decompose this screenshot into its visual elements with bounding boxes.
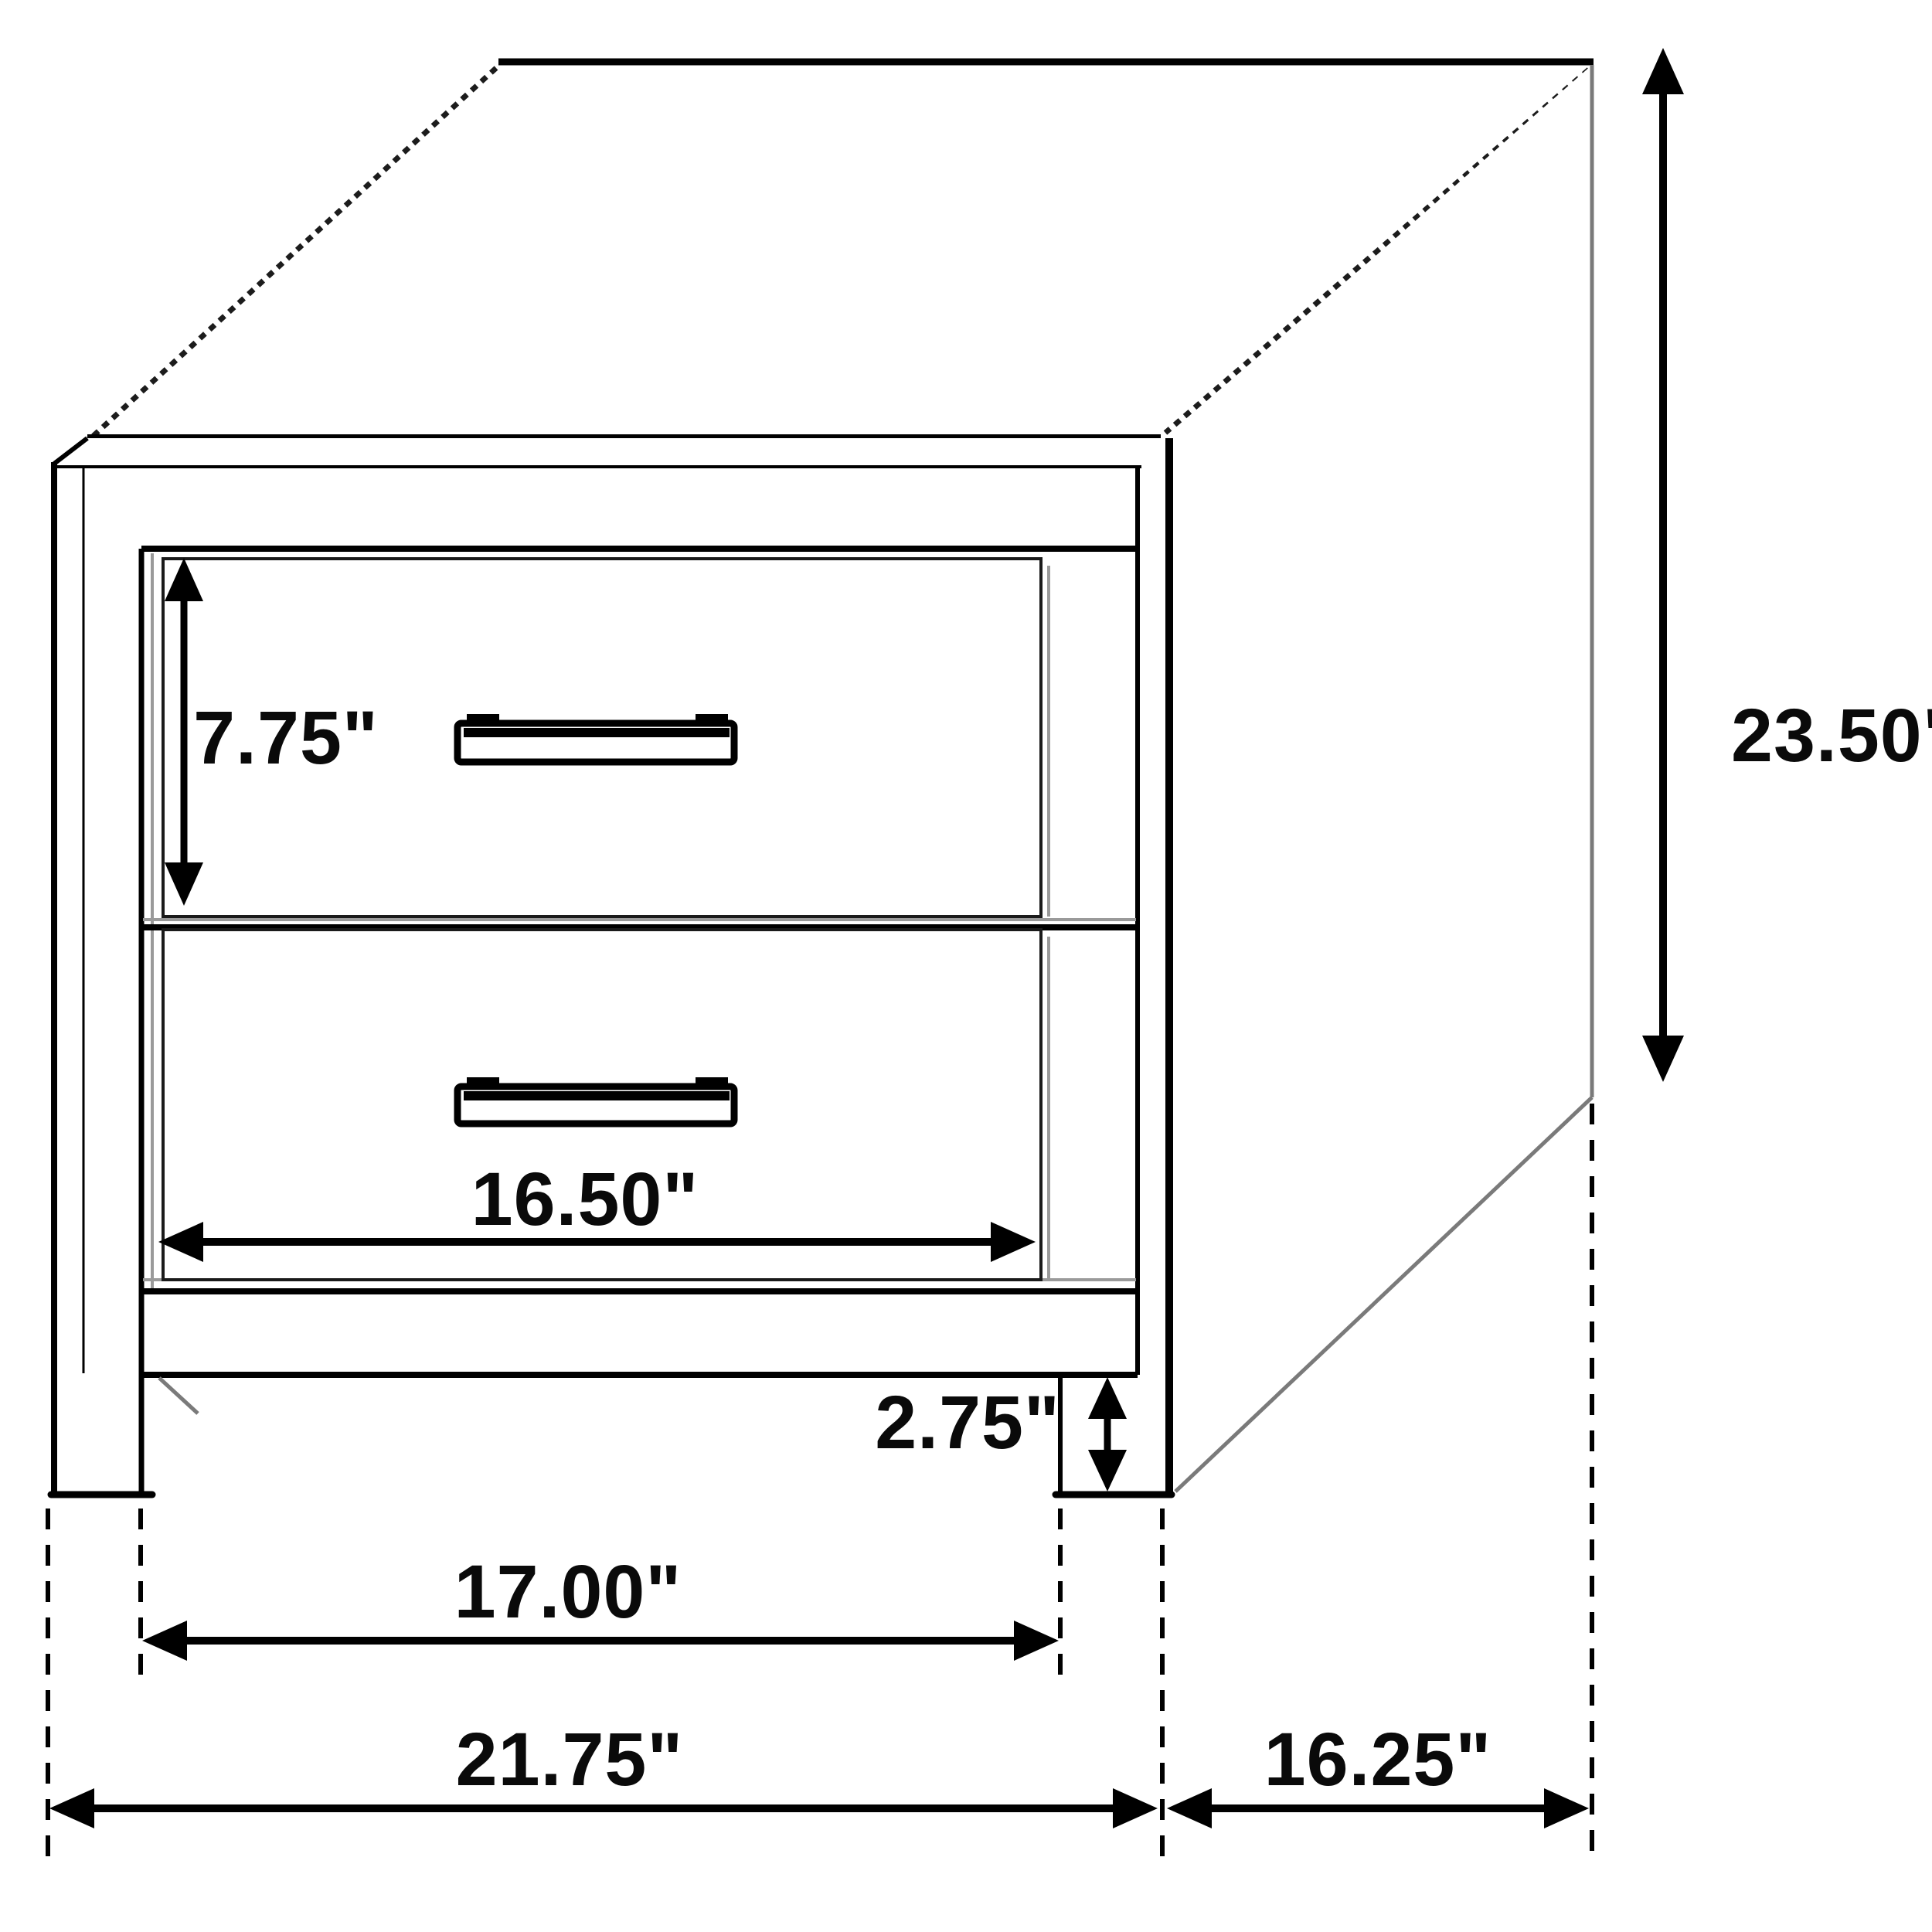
- dim-label-overall-height: 23.50": [1731, 693, 1932, 777]
- dim-label-overall-width: 21.75": [456, 1717, 684, 1801]
- dim-label-depth: 16.25": [1264, 1717, 1492, 1801]
- dimension-overall-height: 23.50": [1642, 48, 1932, 1082]
- arrow-right-icon: [1113, 1788, 1158, 1828]
- dimension-inner-leg-span: 17.00": [142, 1549, 1059, 1661]
- top-drawer-handle: [457, 714, 734, 762]
- bottom-drawer-handle: [457, 1077, 734, 1124]
- dimension-overall-width: 21.75": [49, 1717, 1158, 1828]
- dim-label-leg-height: 2.75": [875, 1380, 1060, 1464]
- dim-label-inner-leg-span: 17.00": [454, 1549, 682, 1634]
- arrow-right-icon: [1014, 1621, 1059, 1661]
- arrow-down-icon: [1642, 1036, 1684, 1082]
- arrow-left-icon: [1167, 1788, 1212, 1828]
- diagram-canvas: 23.50" 7.75" 16.50" 2.75" 17.00" 21.75" …: [0, 0, 1932, 1932]
- dim-label-drawer-width: 16.50": [471, 1157, 699, 1241]
- nightstand-dimension-drawing: 23.50" 7.75" 16.50" 2.75" 17.00" 21.75" …: [0, 0, 1932, 1932]
- arrow-right-icon: [1544, 1788, 1589, 1828]
- dim-label-top-drawer-height: 7.75": [193, 696, 379, 780]
- arrow-left-icon: [49, 1788, 94, 1828]
- arrow-left-icon: [142, 1621, 187, 1661]
- dimension-depth: 16.25": [1167, 1717, 1589, 1828]
- arrow-up-icon: [1642, 48, 1684, 94]
